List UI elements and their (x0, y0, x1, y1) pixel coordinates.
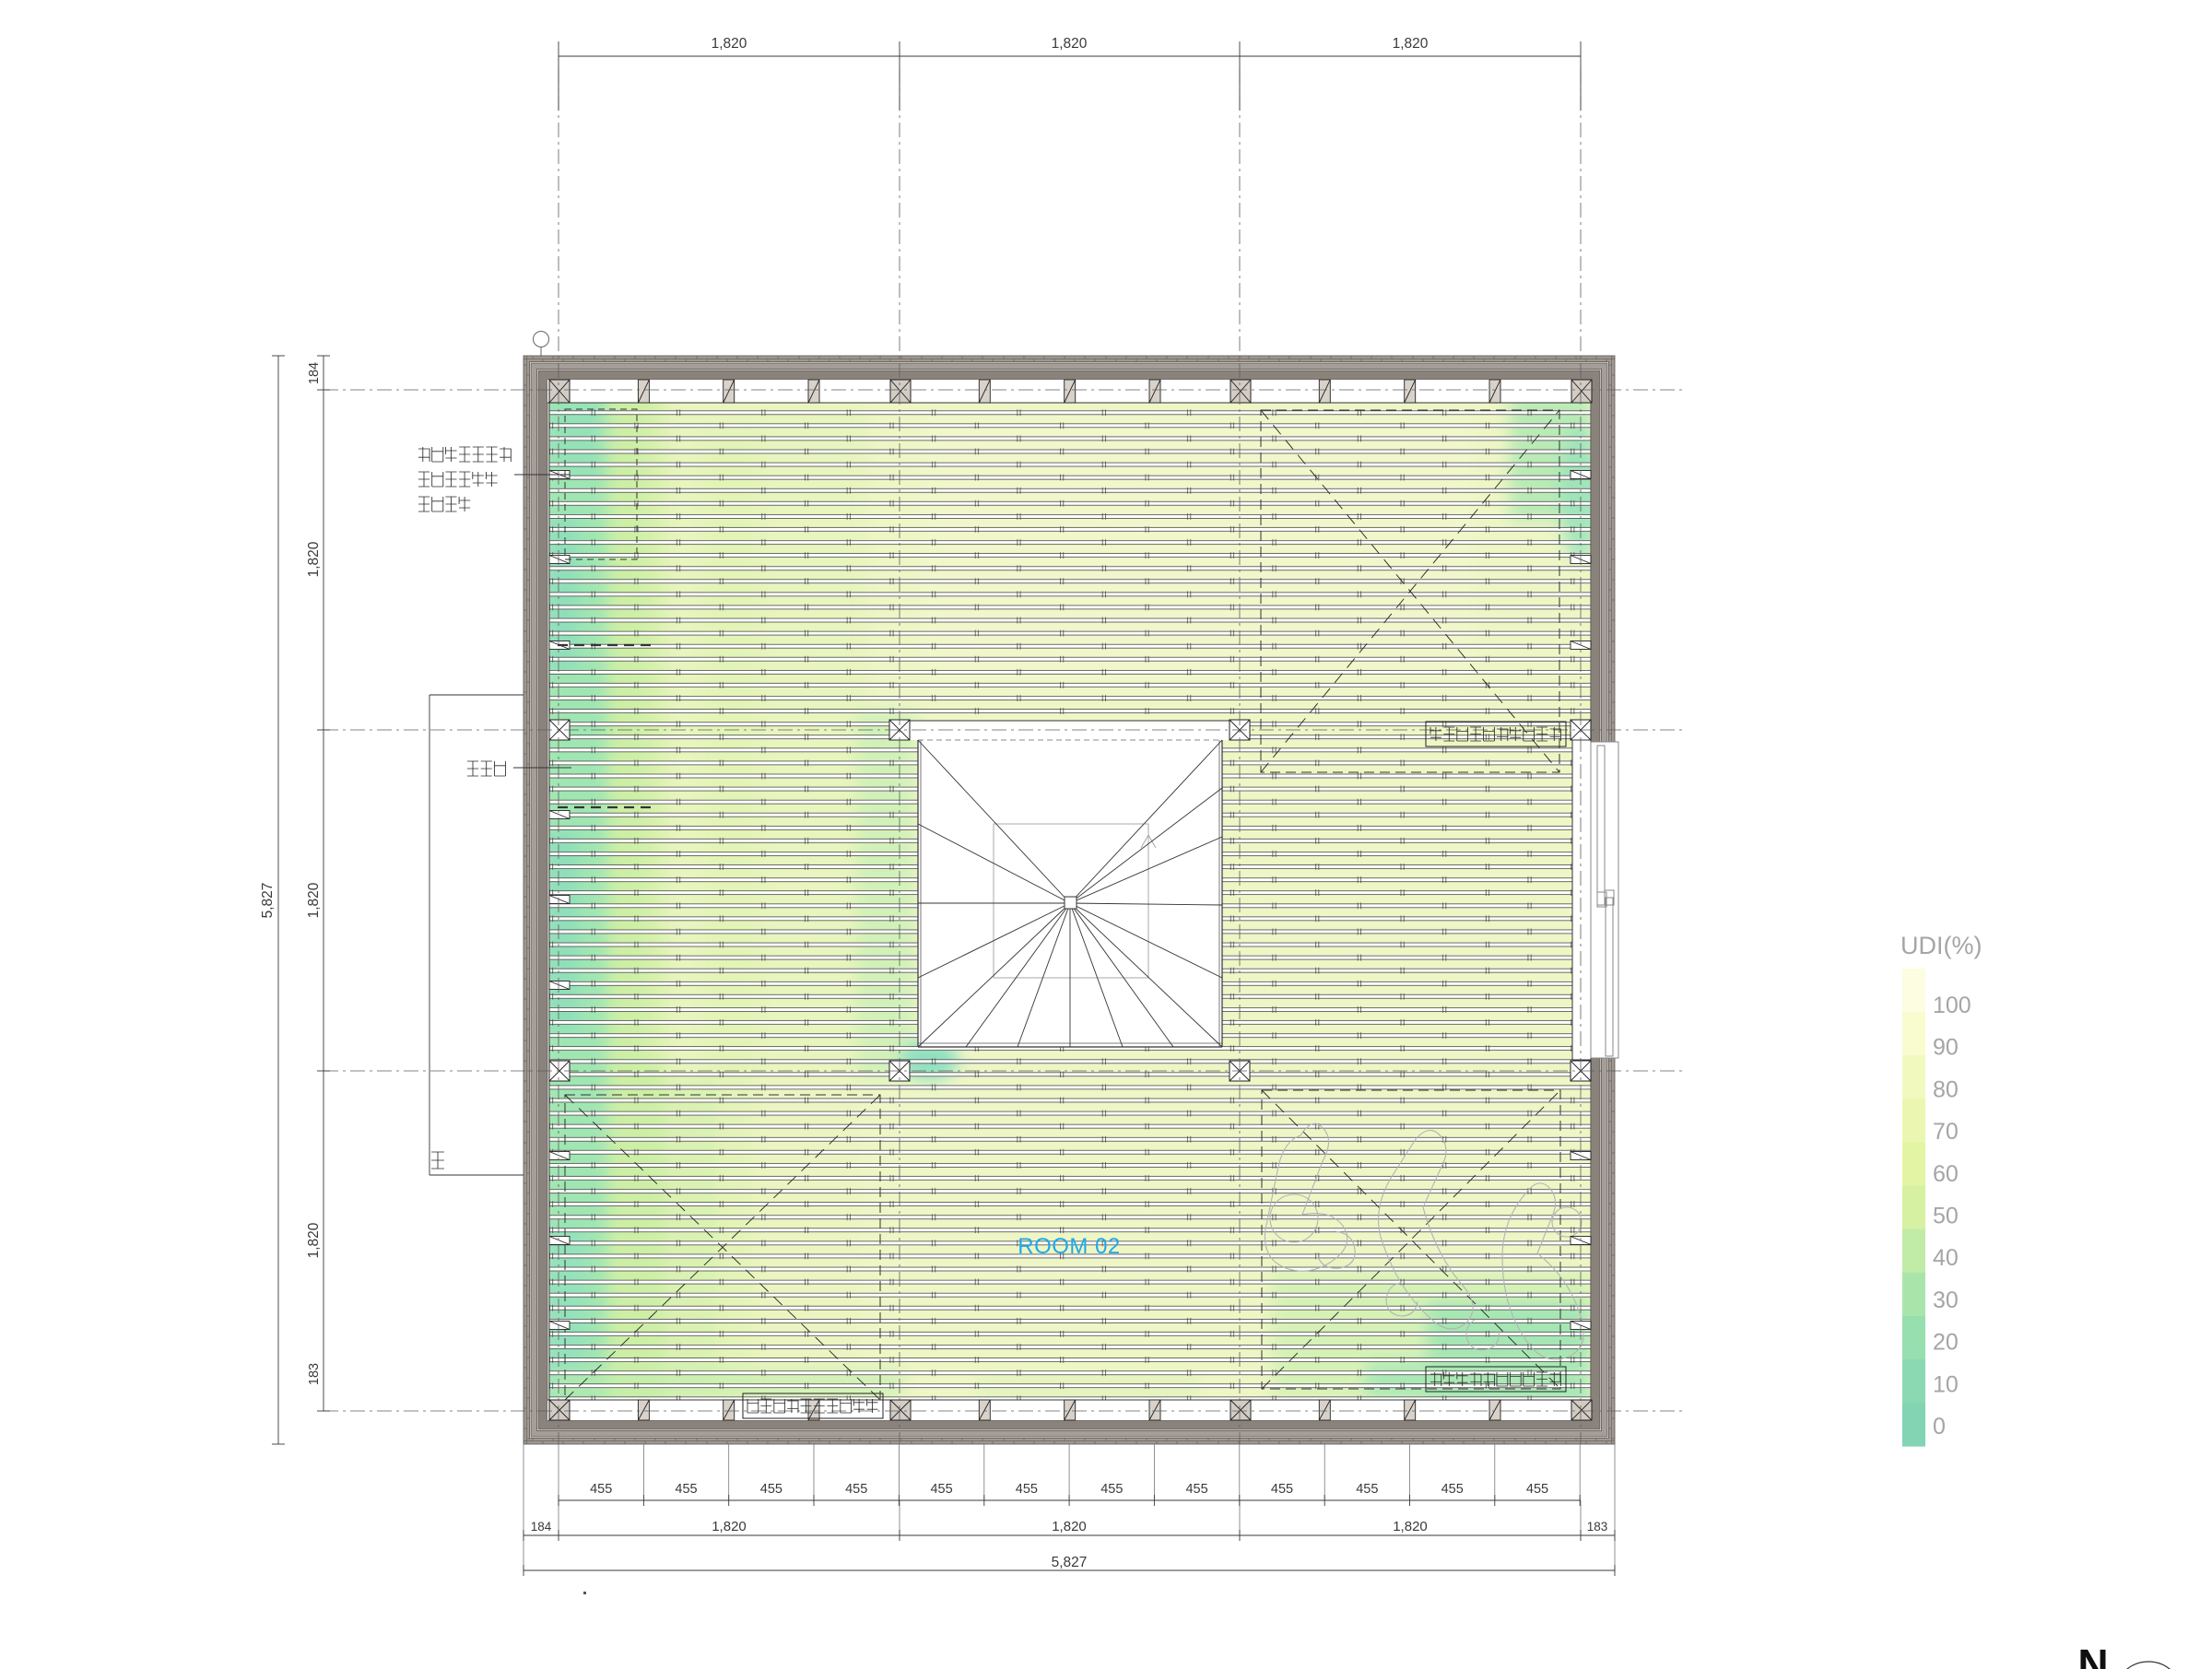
svg-text:100: 100 (1933, 993, 1971, 1018)
svg-text:70: 70 (1933, 1119, 1959, 1145)
svg-text:455: 455 (1100, 1482, 1123, 1497)
svg-text:5,827: 5,827 (1052, 1555, 1088, 1570)
svg-text:455: 455 (1185, 1482, 1207, 1497)
svg-text:1,820: 1,820 (1052, 36, 1088, 52)
svg-text:50: 50 (1933, 1204, 1959, 1229)
svg-text:1,820: 1,820 (306, 882, 322, 918)
svg-text:1,820: 1,820 (712, 36, 747, 52)
svg-text:455: 455 (845, 1482, 867, 1497)
svg-text:10: 10 (1933, 1371, 1959, 1397)
svg-text:1,820: 1,820 (306, 541, 322, 577)
svg-text:1,820: 1,820 (712, 1519, 747, 1534)
svg-text:455: 455 (1441, 1482, 1464, 1497)
svg-text:N: N (2077, 1640, 2108, 1669)
svg-text:80: 80 (1933, 1076, 1959, 1102)
svg-text:455: 455 (1271, 1482, 1293, 1497)
svg-text:UDI(%): UDI(%) (1900, 932, 1983, 959)
svg-text:455: 455 (675, 1482, 697, 1497)
svg-text:5,827: 5,827 (260, 883, 276, 919)
svg-text:455: 455 (590, 1482, 612, 1497)
svg-text:455: 455 (930, 1482, 952, 1497)
svg-text:455: 455 (1356, 1482, 1378, 1497)
svg-text:183: 183 (307, 1363, 322, 1385)
svg-text:184: 184 (531, 1520, 552, 1534)
svg-text:0: 0 (1933, 1414, 1946, 1440)
svg-text:30: 30 (1933, 1287, 1959, 1313)
svg-text:60: 60 (1933, 1161, 1959, 1187)
svg-text:183: 183 (1587, 1520, 1608, 1534)
svg-text:1,820: 1,820 (1393, 36, 1429, 52)
svg-text:455: 455 (760, 1482, 782, 1497)
svg-text:40: 40 (1933, 1245, 1959, 1271)
svg-text:1,820: 1,820 (306, 1222, 322, 1258)
svg-text:ROOM 02: ROOM 02 (1018, 1234, 1121, 1259)
svg-text:1,820: 1,820 (1393, 1519, 1428, 1534)
svg-text:90: 90 (1933, 1035, 1959, 1061)
svg-text:184: 184 (307, 362, 322, 384)
svg-text:20: 20 (1933, 1330, 1959, 1356)
svg-text:455: 455 (1016, 1482, 1038, 1497)
svg-text:455: 455 (1526, 1482, 1548, 1497)
svg-text:1,820: 1,820 (1052, 1519, 1087, 1534)
